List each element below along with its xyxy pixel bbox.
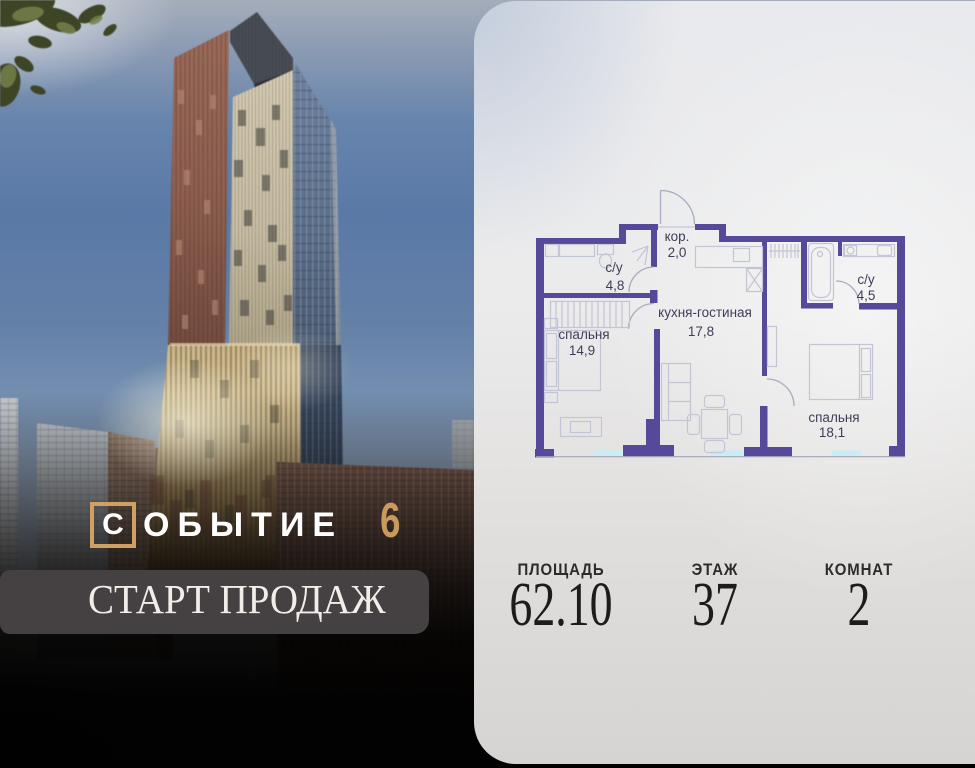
svg-text:спальня: спальня <box>808 410 859 425</box>
svg-text:17,8: 17,8 <box>688 324 714 339</box>
svg-text:кор.: кор. <box>665 229 690 244</box>
svg-text:спальня: спальня <box>558 327 609 342</box>
svg-text:с/у: с/у <box>857 272 875 287</box>
svg-text:4,5: 4,5 <box>857 288 876 303</box>
svg-text:18,1: 18,1 <box>819 425 845 440</box>
svg-text:кухня-гостиная: кухня-гостиная <box>658 305 752 320</box>
svg-text:4,8: 4,8 <box>606 278 625 293</box>
svg-text:с/у: с/у <box>605 260 623 275</box>
svg-text:14,9: 14,9 <box>569 343 595 358</box>
svg-text:2,0: 2,0 <box>668 245 687 260</box>
